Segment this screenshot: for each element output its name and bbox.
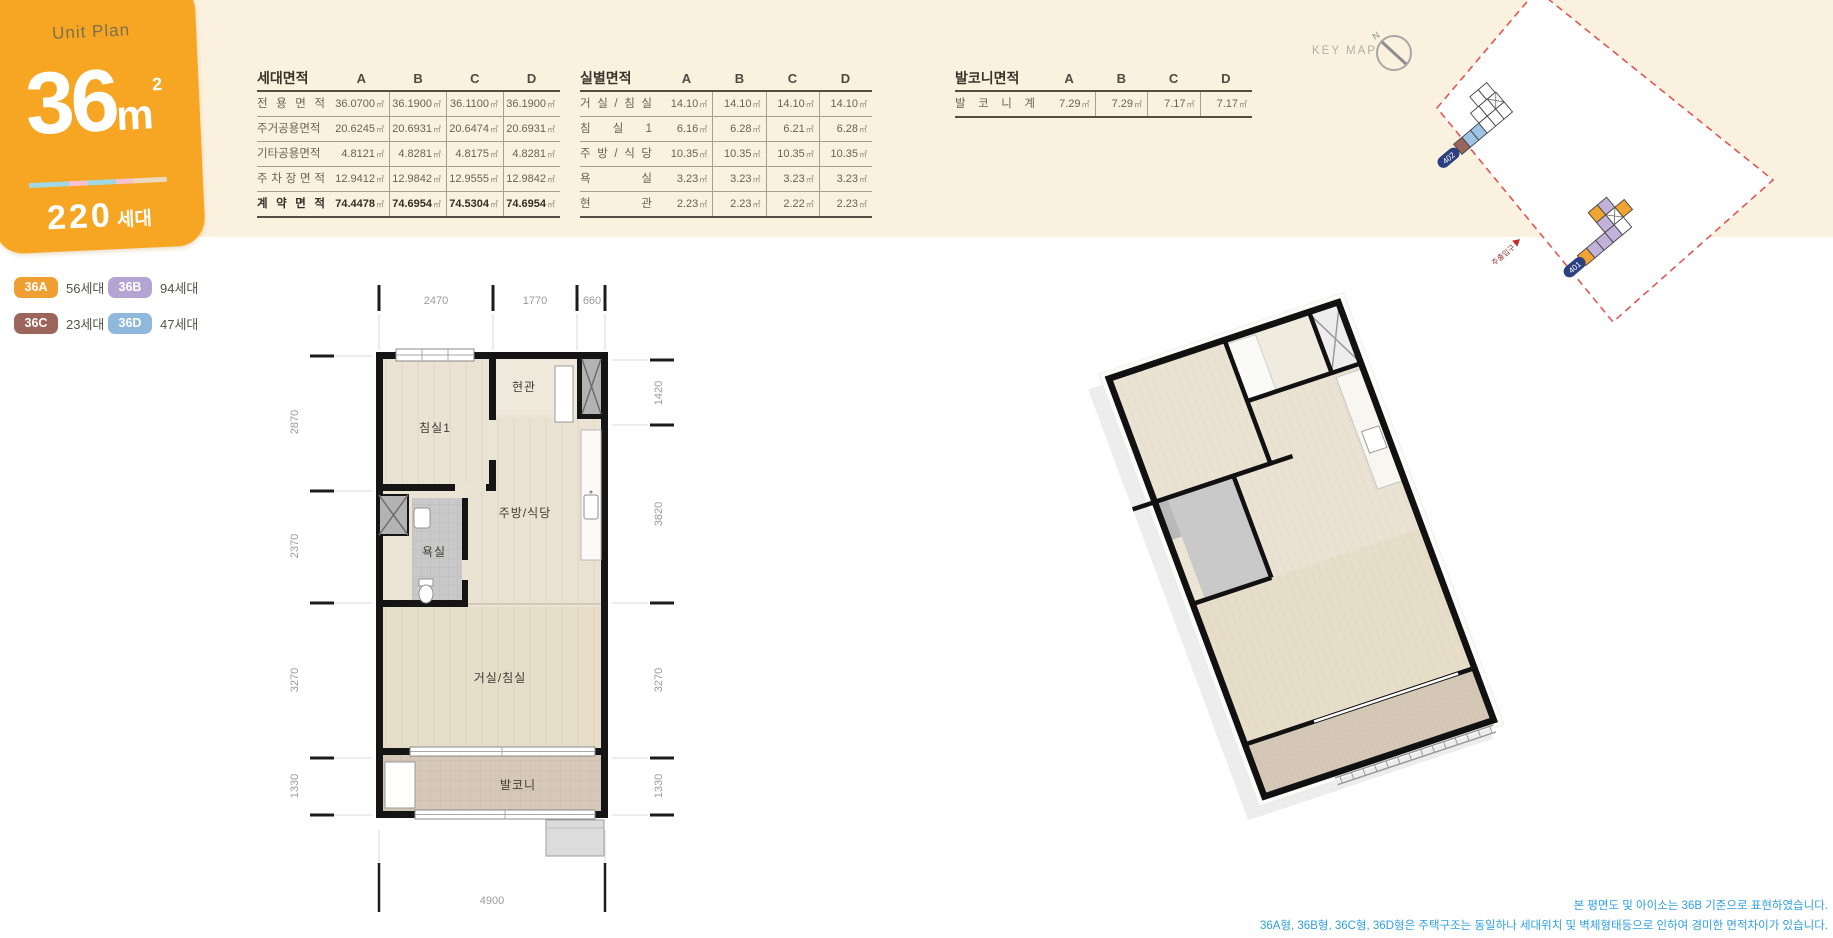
label-balcony: 발코니 <box>500 778 536 792</box>
legend-item-36d: 36D 47세대 <box>108 312 198 334</box>
table-row: 주 방 / 식 당10.35㎡10.35㎡10.35㎡10.35㎡ <box>580 142 872 167</box>
area-value: 14.10㎡ <box>819 92 872 116</box>
area-value: 12.9412㎡ <box>333 167 389 191</box>
ac-unit <box>546 820 604 856</box>
type-badge-36b: 36B <box>108 277 152 298</box>
unit-plan-badge: Unit Plan 36m2 220세대 <box>0 0 206 255</box>
area-value: 3.23㎡ <box>712 167 765 191</box>
row-label: 주 차 장 면 적 <box>257 167 333 191</box>
badge-households: 220세대 <box>0 192 205 240</box>
svg-text:4900: 4900 <box>480 895 504 907</box>
row-label: 발 코 니 계 <box>955 92 1043 116</box>
row-label: 기타공용면적 <box>257 142 333 166</box>
column-header-c: C <box>766 71 819 86</box>
svg-text:2470: 2470 <box>424 295 448 307</box>
svg-text:1420: 1420 <box>653 381 665 405</box>
area-value: 74.4478㎡ <box>333 192 389 216</box>
label-bath: 욕실 <box>422 545 446 559</box>
area-value: 7.17㎡ <box>1147 92 1200 116</box>
area-value: 14.10㎡ <box>766 92 819 116</box>
svg-text:1330: 1330 <box>289 774 301 798</box>
svg-text:2870: 2870 <box>289 410 301 434</box>
legend-item-36c: 36C 23세대 <box>14 312 104 334</box>
area-value: 74.5304㎡ <box>446 192 503 216</box>
balcony-window <box>410 747 595 756</box>
area-value: 10.35㎡ <box>819 142 872 166</box>
balcony-storage <box>385 762 415 808</box>
table-row: 욕 실3.23㎡3.23㎡3.23㎡3.23㎡ <box>580 167 872 192</box>
area-value: 20.6931㎡ <box>389 117 446 141</box>
table-unit-area: 세대면적ABCD전 용 면 적36.0700㎡36.1900㎡36.1100㎡3… <box>257 66 560 218</box>
table-header: 실별면적ABCD <box>580 66 872 92</box>
row-label: 거 실 / 침 실 <box>580 92 660 116</box>
svg-text:3270: 3270 <box>653 668 665 692</box>
row-label: 주거공용면적 <box>257 117 333 141</box>
area-value: 12.9842㎡ <box>503 167 560 191</box>
area-value: 12.9842㎡ <box>389 167 446 191</box>
column-header-d: D <box>1200 71 1252 86</box>
row-label: 침 실 1 <box>580 117 660 141</box>
area-value: 10.35㎡ <box>766 142 819 166</box>
area-value: 12.9555㎡ <box>446 167 503 191</box>
table-row: 발 코 니 계7.29㎡7.29㎡7.17㎡7.17㎡ <box>955 92 1252 118</box>
table-title: 실별면적 <box>580 68 660 88</box>
unit-plan-page: KEY MAP N 402 <box>0 0 1833 938</box>
area-value: 4.8281㎡ <box>503 142 560 166</box>
row-label: 현 관 <box>580 192 660 216</box>
area-value: 20.6245㎡ <box>333 117 389 141</box>
area-value: 6.28㎡ <box>712 117 765 141</box>
area-value: 36.1900㎡ <box>389 92 446 116</box>
footnote-line2: 36A형, 36B형, 36C형, 36D형은 주택구조는 동일하나 세대위치 … <box>1260 916 1828 936</box>
dim-right: 1420 3820 3270 1330 <box>612 360 674 815</box>
main-entrance-marker: 주출입구 <box>1489 236 1524 267</box>
svg-text:N: N <box>1370 30 1381 42</box>
table-row: 침 실 16.16㎡6.28㎡6.21㎡6.28㎡ <box>580 117 872 142</box>
column-header-a: A <box>1043 71 1095 86</box>
area-value: 2.23㎡ <box>712 192 765 216</box>
area-value: 6.21㎡ <box>766 117 819 141</box>
column-header-c: C <box>447 71 504 86</box>
footnote: 본 평면도 및 아이소는 36B 기준으로 표현하였습니다. 36A형, 36B… <box>1260 896 1828 936</box>
area-value: 20.6474㎡ <box>446 117 503 141</box>
area-value: 4.8121㎡ <box>333 142 389 166</box>
floor-balcony <box>383 755 601 811</box>
isometric-floorplan <box>920 265 1520 825</box>
footnote-line1: 본 평면도 및 아이소는 36B 기준으로 표현하였습니다. <box>1260 896 1828 916</box>
balcony-exterior-window <box>415 810 595 819</box>
area-value: 74.6954㎡ <box>503 192 560 216</box>
column-header-a: A <box>660 71 713 86</box>
table-row: 거 실 / 침 실14.10㎡14.10㎡14.10㎡14.10㎡ <box>580 92 872 117</box>
badge-area: 36m2 <box>0 39 202 174</box>
row-label: 욕 실 <box>580 167 660 191</box>
area-value: 4.8281㎡ <box>389 142 446 166</box>
duct-shaft <box>379 495 408 535</box>
bath-sink <box>414 508 430 528</box>
table-room-area: 실별면적ABCD거 실 / 침 실14.10㎡14.10㎡14.10㎡14.10… <box>580 66 872 218</box>
type-badge-36a: 36A <box>14 277 58 298</box>
legend-item-36b: 36B 94세대 <box>108 276 198 298</box>
svg-text:1770: 1770 <box>523 295 547 307</box>
area-value: 4.8175㎡ <box>446 142 503 166</box>
area-value: 7.17㎡ <box>1200 92 1253 116</box>
column-header-d: D <box>503 71 560 86</box>
area-value: 6.28㎡ <box>819 117 872 141</box>
table-row: 기타공용면적4.8121㎡4.8281㎡4.8175㎡4.8281㎡ <box>257 142 560 167</box>
area-value: 74.6954㎡ <box>389 192 446 216</box>
table-row: 전 용 면 적36.0700㎡36.1900㎡36.1100㎡36.1900㎡ <box>257 92 560 117</box>
kitchen-counter <box>581 430 601 560</box>
area-value: 6.16㎡ <box>660 117 712 141</box>
table-title: 발코니면적 <box>955 68 1043 88</box>
area-value: 2.23㎡ <box>819 192 872 216</box>
area-value: 36.1900㎡ <box>503 92 560 116</box>
legend-item-36a: 36A 56세대 <box>14 276 104 298</box>
area-value: 10.35㎡ <box>660 142 712 166</box>
table-balcony-area: 발코니면적ABCD발 코 니 계7.29㎡7.29㎡7.17㎡7.17㎡ <box>955 66 1252 118</box>
column-header-b: B <box>713 71 766 86</box>
dim-left: 2870 2370 3270 1330 <box>289 356 372 815</box>
badge-stripe <box>29 177 167 188</box>
table-title: 세대면적 <box>257 68 333 88</box>
label-bedroom1: 침실1 <box>419 421 451 435</box>
column-header-a: A <box>333 71 390 86</box>
column-header-c: C <box>1148 71 1200 86</box>
type-badge-36d: 36D <box>108 313 152 334</box>
column-header-d: D <box>819 71 872 86</box>
north-compass-icon: N <box>1370 30 1411 70</box>
area-value: 10.35㎡ <box>712 142 765 166</box>
area-value: 7.29㎡ <box>1095 92 1148 116</box>
svg-text:3270: 3270 <box>289 668 301 692</box>
label-kitchen: 주방/식당 <box>499 506 552 520</box>
svg-text:2370: 2370 <box>289 534 301 558</box>
entry-closet <box>555 366 573 422</box>
area-value: 2.23㎡ <box>660 192 712 216</box>
row-label: 전 용 면 적 <box>257 92 333 116</box>
dim-top: 2470 1770 660 <box>379 285 605 350</box>
svg-text:1330: 1330 <box>653 774 665 798</box>
column-header-b: B <box>1095 71 1147 86</box>
svg-text:660: 660 <box>583 295 601 307</box>
area-value: 14.10㎡ <box>712 92 765 116</box>
table-row: 현 관2.23㎡2.23㎡2.22㎡2.23㎡ <box>580 192 872 218</box>
svg-text:3820: 3820 <box>653 502 665 526</box>
area-value: 14.10㎡ <box>660 92 712 116</box>
table-row: 주 차 장 면 적12.9412㎡12.9842㎡12.9555㎡12.9842… <box>257 167 560 192</box>
area-value: 3.23㎡ <box>660 167 712 191</box>
elevator-shaft <box>582 359 601 414</box>
area-value: 36.0700㎡ <box>333 92 389 116</box>
table-row: 주거공용면적20.6245㎡20.6931㎡20.6474㎡20.6931㎡ <box>257 117 560 142</box>
type-count-36a: 56세대 <box>66 278 104 297</box>
area-value: 20.6931㎡ <box>503 117 560 141</box>
bedroom-window <box>396 349 474 361</box>
floorplan-2d: 2470 1770 660 4900 2870 2370 3270 1330 1… <box>250 270 690 930</box>
label-living: 거실/침실 <box>474 671 527 685</box>
svg-text:주출입구: 주출입구 <box>1489 242 1517 267</box>
type-count-36d: 47세대 <box>160 314 198 333</box>
table-header: 세대면적ABCD <box>257 66 560 92</box>
area-value: 7.29㎡ <box>1043 92 1095 116</box>
area-value: 2.22㎡ <box>766 192 819 216</box>
column-header-b: B <box>390 71 447 86</box>
table-row: 계 약 면 적74.4478㎡74.6954㎡74.5304㎡74.6954㎡ <box>257 192 560 218</box>
toilet <box>419 585 433 603</box>
area-value: 36.1100㎡ <box>446 92 503 116</box>
type-count-36b: 94세대 <box>160 278 198 297</box>
kitchen-sink <box>584 495 598 519</box>
row-label: 계 약 면 적 <box>257 192 333 216</box>
label-entry: 현관 <box>512 380 536 394</box>
area-value: 3.23㎡ <box>766 167 819 191</box>
type-count-36c: 23세대 <box>66 314 104 333</box>
area-value: 3.23㎡ <box>819 167 872 191</box>
table-header: 발코니면적ABCD <box>955 66 1252 92</box>
type-badge-36c: 36C <box>14 313 58 334</box>
row-label: 주 방 / 식 당 <box>580 142 660 166</box>
